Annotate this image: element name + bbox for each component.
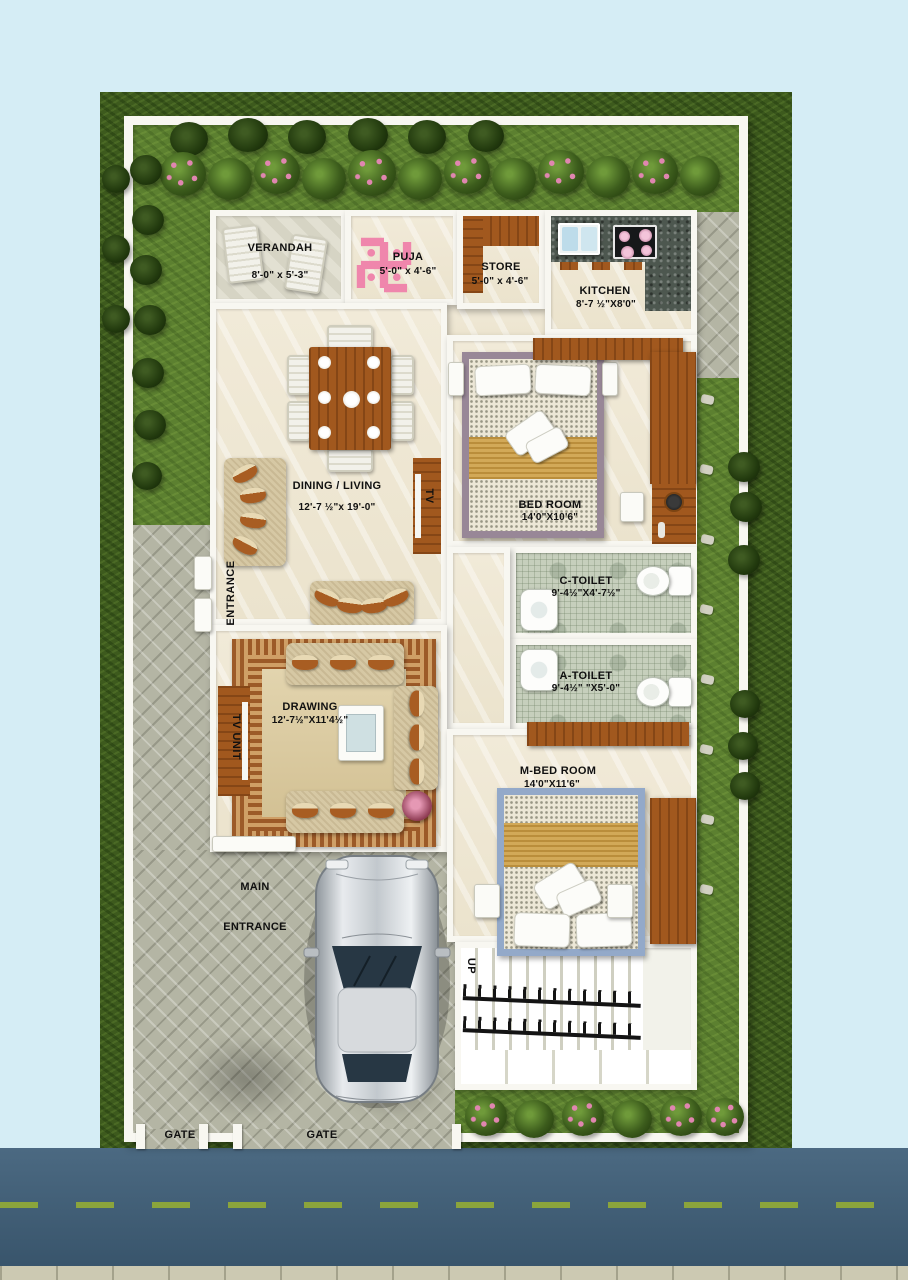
puja-label: PUJA <box>372 251 444 264</box>
shrub <box>228 118 268 152</box>
shrub <box>132 205 164 235</box>
stair-landing <box>461 1050 691 1084</box>
a-toilet-label: A-TOILET <box>524 670 648 683</box>
shrub <box>348 118 388 152</box>
bed-room-dims: 14'0"X10'6" <box>462 512 638 524</box>
shrub <box>170 122 208 156</box>
shrub <box>492 158 536 200</box>
flowering-shrub <box>632 150 678 194</box>
pillow <box>513 912 570 948</box>
shrub <box>134 305 166 335</box>
sofa <box>286 791 404 833</box>
dining-chair <box>390 355 414 395</box>
shrub <box>728 545 760 575</box>
shrub <box>514 1100 554 1138</box>
dining-chair <box>287 401 311 441</box>
c-toilet-label: C-TOILET <box>524 575 648 588</box>
room-store <box>457 210 545 309</box>
dining-chair <box>327 448 373 472</box>
gate-label-left: GATE <box>152 1129 208 1142</box>
flowering-shrub <box>160 152 206 196</box>
shrub <box>612 1100 652 1138</box>
dressing-table <box>652 484 696 544</box>
entrance-step <box>194 556 212 590</box>
main-entrance-line2: ENTRANCE <box>205 921 305 934</box>
shrub <box>408 120 446 154</box>
flowering-shrub <box>465 1096 507 1136</box>
tv-unit-label: TV UNIT <box>230 697 242 777</box>
flowering-shrub <box>444 150 490 194</box>
store-label: STORE <box>462 261 540 274</box>
flowering-shrub <box>254 150 300 194</box>
cabinet-front <box>624 262 642 270</box>
wardrobe <box>650 352 696 484</box>
shrub <box>730 772 760 800</box>
puja-dims: 5'-0" x 4'-6" <box>360 266 456 278</box>
shrub <box>102 305 130 333</box>
shrub <box>398 158 442 200</box>
shrub <box>130 155 162 185</box>
shrub <box>730 690 760 718</box>
shrub <box>102 235 130 263</box>
main-entrance-label: MAIN ENTRANCE <box>205 855 305 961</box>
toilet-wc <box>668 566 692 596</box>
room-verandah <box>210 210 347 305</box>
shrub <box>586 156 630 198</box>
kitchen-dims: 8'-7 ½"X8'0" <box>548 299 664 311</box>
tv-label: TV <box>423 481 435 511</box>
verandah-dims: 8'-0" x 5'-3" <box>215 270 345 282</box>
up-label: UP <box>465 951 477 981</box>
car <box>302 850 452 1108</box>
m-bed-room-dims: 14'0"X11'6" <box>462 779 642 791</box>
road-center-line <box>0 1202 908 1208</box>
room-drawing <box>210 625 447 852</box>
swastika-icon <box>352 233 416 297</box>
shrub <box>730 492 762 522</box>
shrub <box>208 158 252 200</box>
paved-side-strip <box>697 212 739 378</box>
kitchen-sink <box>558 223 600 255</box>
sofa <box>286 643 404 685</box>
wardrobe <box>650 798 696 944</box>
flowering-shrub <box>348 150 396 196</box>
curved-sofa <box>310 581 414 625</box>
c-toilet-dims: 9'-4½"X4'-7½" <box>520 588 652 600</box>
shrub <box>132 358 164 388</box>
pillow <box>534 364 591 397</box>
gate-post <box>233 1124 242 1149</box>
sofa <box>394 686 438 790</box>
nightstand <box>607 884 633 918</box>
dining-living-label: DINING / LIVING <box>254 480 420 493</box>
shrub <box>134 410 166 440</box>
cabinet-front <box>560 262 578 270</box>
flowering-shrub <box>538 150 584 194</box>
shrub <box>302 158 346 200</box>
bed-room-label: BED ROOM <box>460 499 640 512</box>
stairs <box>455 942 697 1090</box>
gate-label-right: GATE <box>292 1129 352 1142</box>
cabinet-front <box>592 262 610 270</box>
kitchen-label: KITCHEN <box>560 285 650 298</box>
door-lintel <box>527 722 689 746</box>
main-entrance-line1: MAIN <box>205 881 305 894</box>
room-kitchen <box>545 210 697 335</box>
shrub <box>130 255 162 285</box>
tree-shadow <box>185 1035 310 1120</box>
sidewalk <box>0 1266 908 1280</box>
nightstand <box>602 362 618 396</box>
m-bed-room-label: M-BED ROOM <box>468 765 648 778</box>
shrub <box>728 732 758 760</box>
flowering-shrub <box>562 1096 604 1136</box>
nightstand <box>474 884 500 918</box>
pillow <box>474 364 531 397</box>
verandah-label: VERANDAH <box>215 242 345 255</box>
a-toilet-dims: 9'-4½" "X5'-0" <box>520 683 652 695</box>
room-dining-living <box>210 303 447 625</box>
main-entrance-step <box>212 836 296 852</box>
dining-chair <box>390 401 414 441</box>
shrub <box>132 462 162 490</box>
dining-table <box>309 347 391 450</box>
shrub <box>680 156 720 196</box>
nightstand <box>448 362 464 396</box>
flower-pot <box>402 791 432 821</box>
cooktop <box>613 225 657 259</box>
entrance-step <box>194 598 212 632</box>
shrub <box>468 120 504 152</box>
gate-post <box>452 1124 461 1149</box>
dining-chair <box>327 325 373 349</box>
dining-living-dims: 12'-7 ½"x 19'-0" <box>252 502 422 514</box>
bed <box>497 788 645 956</box>
store-dims: 5'-0" x 4'-6" <box>450 276 550 288</box>
dining-chair <box>287 355 311 395</box>
shrub <box>288 120 326 154</box>
road <box>0 1148 908 1268</box>
drawing-dims: 12'-7½"X11'4½" <box>240 715 380 727</box>
flowering-shrub <box>660 1096 702 1136</box>
shrub <box>728 452 760 482</box>
floor-plan-scene: VERANDAH 8'-0" x 5'-3" PUJA 5'-0" x 4'-6… <box>0 0 908 1280</box>
toilet-wc <box>668 677 692 707</box>
shrub <box>102 165 130 193</box>
passage <box>447 547 510 729</box>
drawing-label: DRAWING <box>252 701 368 714</box>
gate-post <box>136 1124 145 1149</box>
entrance-label: ENTRANCE <box>225 548 237 638</box>
flowering-shrub <box>706 1098 744 1136</box>
